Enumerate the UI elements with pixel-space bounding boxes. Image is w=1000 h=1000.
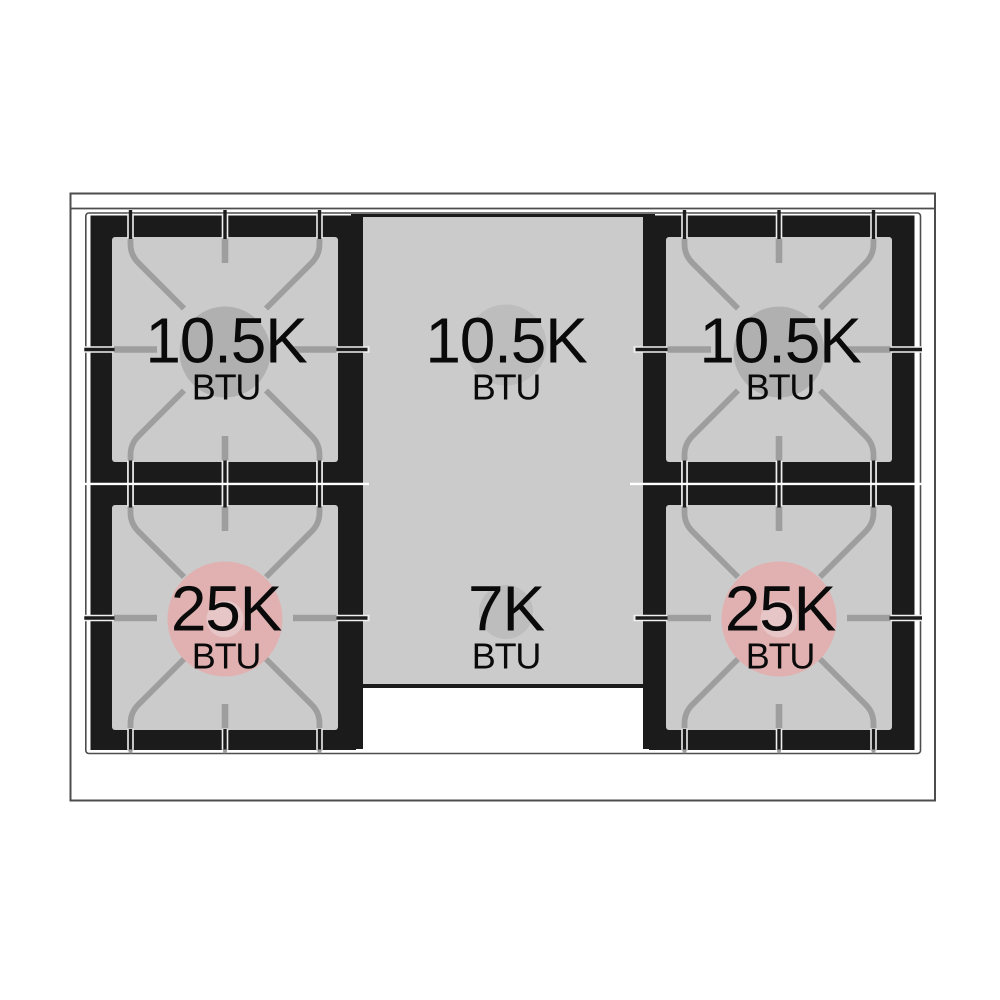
- svg-text:BTU: BTU: [746, 367, 814, 408]
- svg-text:BTU: BTU: [192, 636, 260, 677]
- svg-text:BTU: BTU: [192, 367, 260, 408]
- svg-text:25K: 25K: [725, 573, 836, 645]
- svg-text:BTU: BTU: [746, 636, 814, 677]
- svg-text:BTU: BTU: [472, 636, 540, 677]
- svg-text:25K: 25K: [171, 573, 282, 645]
- svg-text:BTU: BTU: [472, 367, 540, 408]
- svg-text:7K: 7K: [468, 573, 544, 645]
